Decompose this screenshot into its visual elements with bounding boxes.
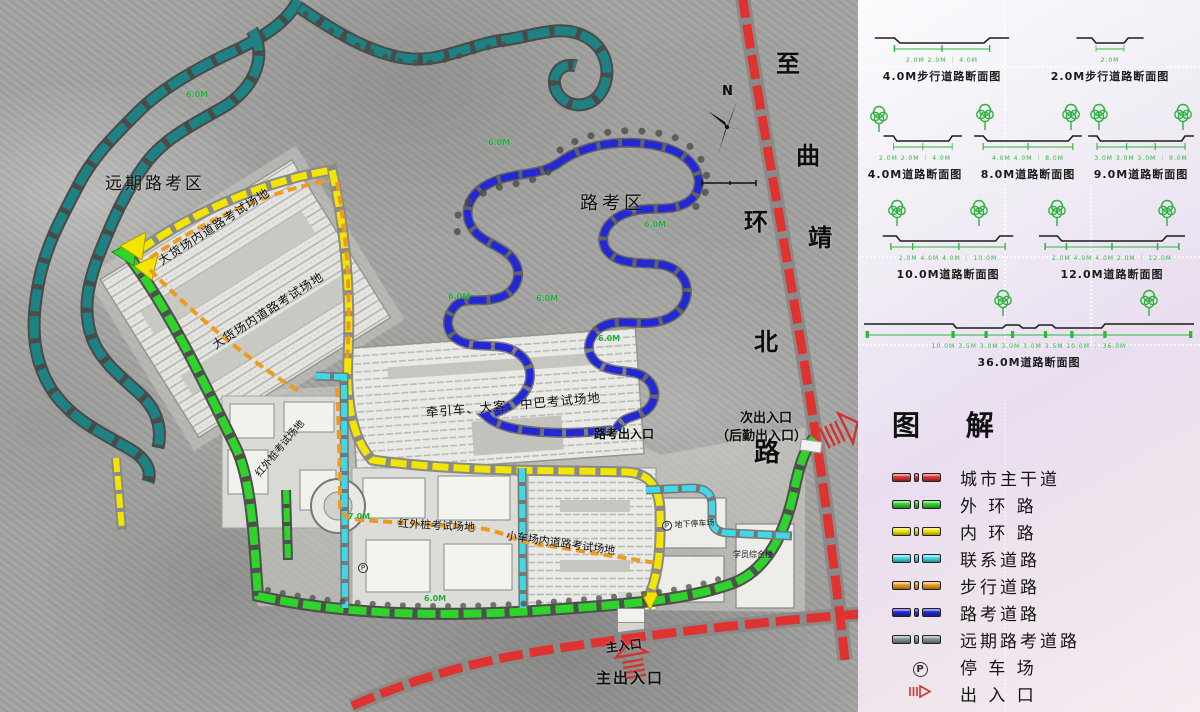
site-plan-map: N xyxy=(0,0,860,712)
dim-tag: 6.0M xyxy=(186,90,208,99)
roadname-char-huan: 环 xyxy=(744,202,768,237)
xsec-dims: 10.0M 3.5M 3.0M 3.0M 3.0M 3.5M 10.0M ｜ 3… xyxy=(864,341,1194,350)
legend-item-pedestrian-road: 步行道路 xyxy=(892,572,1182,599)
xsec-dims: 3.0M 3.0M 3.0M ｜ 9.0M xyxy=(1086,153,1196,162)
outer-ring-swatch xyxy=(892,500,948,509)
legend-item-city-main-road: 城市主干道 xyxy=(892,464,1182,491)
legend-item-entrance: 出 入 口 xyxy=(892,680,1182,707)
label-secondary-entrance-1: 次出入口 xyxy=(740,412,792,427)
legend: 图 解 城市主干道 外 环 路 内 环 路 联系道路 步行道路 xyxy=(892,404,1182,707)
xsec-label: 10.0M道路断面图 xyxy=(880,266,1016,282)
road-test-road-swatch xyxy=(892,608,948,617)
xsec-dims: 2.0M 4.0M 4.0M ｜ 10.0M xyxy=(880,253,1016,262)
road-profile xyxy=(1075,32,1145,52)
main-gate-structure xyxy=(617,608,645,623)
roadname-char-jing: 靖 xyxy=(808,218,832,253)
dim-tag: 6.0M xyxy=(536,294,558,303)
dim-tag: 7.0M xyxy=(348,512,370,521)
legend-item-future-test-road: 远期路考道路 xyxy=(892,626,1182,653)
xsec-8m-road: 4.0M 4.0M ｜ 8.0M 8.0M道路断面图 xyxy=(972,96,1084,184)
roadname-char-bei: 北 xyxy=(754,322,778,357)
legend-item-parking: P 停 车 场 xyxy=(892,653,1182,680)
xsec-dims: 2.0M 4.0M 4.0M 2.0M ｜ 12.0M xyxy=(1036,253,1188,262)
xsec-label: 36.0M道路断面图 xyxy=(864,354,1194,370)
north-label: N xyxy=(722,84,752,99)
xsec-label: 4.0M步行道路断面图 xyxy=(872,68,1012,84)
dim-tag: 6.0M xyxy=(424,594,446,603)
future-test-road-swatch xyxy=(892,635,948,644)
xsec-label: 9.0M道路断面图 xyxy=(1086,166,1196,182)
label-road-test-exit: 路考出入口 xyxy=(594,428,654,442)
legend-item-link-road: 联系道路 xyxy=(892,545,1182,572)
legend-item-road-test-road: 路考道路 xyxy=(892,599,1182,626)
compass-pinwheel-icon xyxy=(704,99,752,159)
entrance-legend-icon xyxy=(892,684,948,703)
north-compass: N xyxy=(704,84,752,163)
roadname-char-zhi: 至 xyxy=(776,44,800,79)
xsec-dims: 2.0M 2.0M ｜ 4.0M xyxy=(872,55,1012,64)
roadname-char-lu: 路 xyxy=(754,432,780,469)
roadname-char-qu: 曲 xyxy=(796,136,820,171)
xsec-4m-ped: 2.0M 2.0M ｜ 4.0M 4.0M步行道路断面图 xyxy=(872,26,1012,84)
city-main-road-swatch xyxy=(892,473,948,482)
link-road-swatch xyxy=(892,554,948,563)
xsec-label: 4.0M道路断面图 xyxy=(864,166,966,182)
xsec-dims: 4.0M 4.0M ｜ 8.0M xyxy=(972,153,1084,162)
xsec-dims: 2.0M 2.0M ｜ 4.0M xyxy=(864,153,966,162)
parking-symbol-map: P xyxy=(358,562,368,574)
label-future-test-area: 远期路考区 xyxy=(105,175,205,195)
inner-ring-swatch xyxy=(892,527,948,536)
xsec-2m-ped: 2.0M 2.0M步行道路断面图 xyxy=(1040,26,1180,84)
xsec-10m-road: 2.0M 4.0M 4.0M ｜ 10.0M 10.0M道路断面图 xyxy=(880,194,1016,286)
legend-item-outer-ring: 外 环 路 xyxy=(892,491,1182,518)
label-main-entrance: 主出入口 xyxy=(596,670,664,687)
legend-item-inner-ring: 内 环 路 xyxy=(892,518,1182,545)
label-road-test-area: 路考区 xyxy=(580,194,646,215)
xsec-36m-road: 10.0M 3.5M 3.0M 3.0M 3.0M 3.5M 10.0M ｜ 3… xyxy=(864,288,1194,374)
xsec-label: 12.0M道路断面图 xyxy=(1036,266,1188,282)
dim-tag: 6.0M xyxy=(644,220,666,229)
dim-tag: 6.0M xyxy=(488,138,510,147)
label-student-building: 学员综合楼 xyxy=(733,550,773,559)
xsec-label: 8.0M道路断面图 xyxy=(972,166,1084,182)
parking-legend-icon: P xyxy=(892,657,948,677)
planning-map-screenshot: N xyxy=(0,0,1200,712)
road-profile xyxy=(872,32,1012,52)
cross-sections-and-legend-panel: 2.0M 2.0M ｜ 4.0M 4.0M步行道路断面图 2.0M 2.0M步行… xyxy=(858,0,1200,712)
xsec-12m-road: 2.0M 4.0M 4.0M 2.0M ｜ 12.0M 12.0M道路断面图 xyxy=(1036,194,1188,286)
parking-icon: P xyxy=(662,520,673,531)
xsec-label: 2.0M步行道路断面图 xyxy=(1040,68,1180,84)
legend-title: 图 解 xyxy=(892,404,1182,444)
dim-tag: 6.0M xyxy=(598,334,620,343)
pedestrian-road-swatch xyxy=(892,581,948,590)
xsec-4m-road: 2.0M 2.0M ｜ 4.0M 4.0M道路断面图 xyxy=(864,96,966,184)
xsec-9m-road: 3.0M 3.0M 3.0M ｜ 9.0M 9.0M道路断面图 xyxy=(1086,96,1196,184)
dim-tag: 6.0M xyxy=(448,292,470,301)
xsec-dims: 2.0M xyxy=(1040,57,1180,64)
